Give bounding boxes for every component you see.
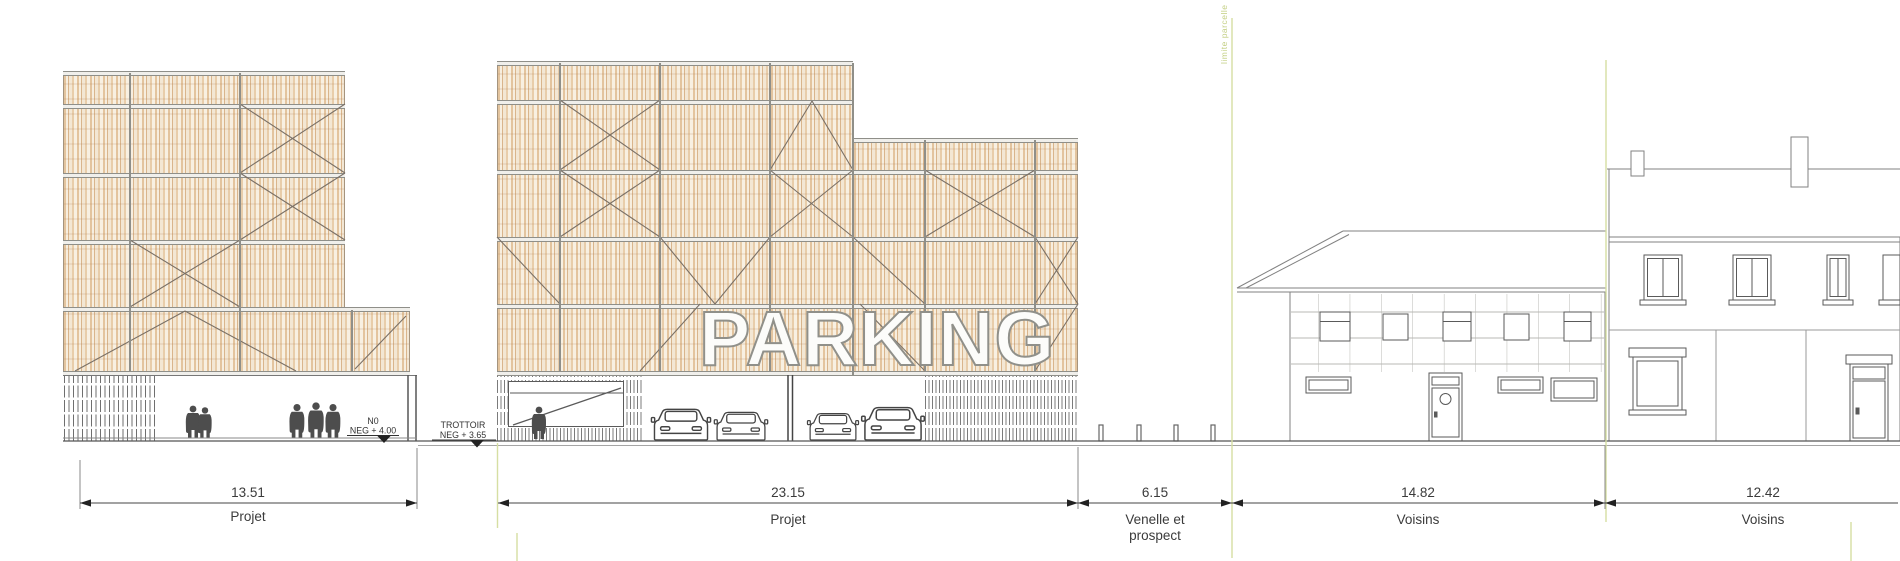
dim-label: Voisins	[1397, 512, 1440, 527]
dim-label: Projet	[770, 512, 806, 527]
svg-text:TROTTOIR: TROTTOIR	[441, 420, 486, 430]
car	[862, 408, 925, 440]
dim-label: Voisins	[1742, 512, 1785, 527]
drawing-linework: limite parcelle N0 NEG + 4.00 TROTTOIR N…	[0, 0, 1900, 561]
dim-value: 6.15	[1142, 485, 1168, 500]
dim-value: 14.82	[1401, 485, 1435, 500]
parking-sign: PARKING	[699, 301, 1084, 377]
dim-label: prospect	[1129, 528, 1181, 543]
dim-label: Venelle et	[1125, 512, 1185, 527]
parking-ground-floor	[510, 375, 924, 441]
person-figure	[325, 404, 340, 438]
neighbour-house-2	[1607, 137, 1900, 441]
person-figure	[308, 402, 324, 438]
pedestrian-figures	[186, 402, 341, 438]
dimension-texts: 13.51 Projet 23.15 Projet 6.15 Venelle e…	[230, 485, 1784, 543]
dim-value: 23.15	[771, 485, 805, 500]
svg-text:N0: N0	[367, 416, 378, 426]
level-marker-trottoir: TROTTOIR NEG + 3.65	[432, 420, 496, 448]
car	[807, 414, 858, 440]
level-marker-n0: N0 NEG + 4.00	[347, 416, 399, 443]
person-figure	[289, 404, 304, 438]
elevation-drawing: limite parcelle N0 NEG + 4.00 TROTTOIR N…	[0, 0, 1900, 561]
svg-text:NEG + 3.65: NEG + 3.65	[440, 430, 486, 440]
car	[714, 412, 767, 440]
dim-value: 13.51	[231, 485, 265, 500]
neighbour-house-1	[1237, 231, 1606, 441]
parcel-limit-label: limite parcelle	[1219, 5, 1229, 64]
person-figure	[186, 406, 200, 438]
svg-text:NEG + 4.00: NEG + 4.00	[350, 426, 396, 436]
level-triangle-icon	[377, 436, 391, 444]
person-figure	[198, 407, 212, 438]
dim-label: Projet	[230, 509, 266, 524]
level-triangle-icon	[470, 440, 484, 448]
dim-value: 12.42	[1746, 485, 1780, 500]
car	[651, 409, 710, 440]
person-figure	[532, 407, 546, 439]
dimension-chain: 13.51 Projet 23.15 Projet 6.15 Venelle e…	[80, 445, 1898, 543]
bollards	[1099, 425, 1215, 441]
